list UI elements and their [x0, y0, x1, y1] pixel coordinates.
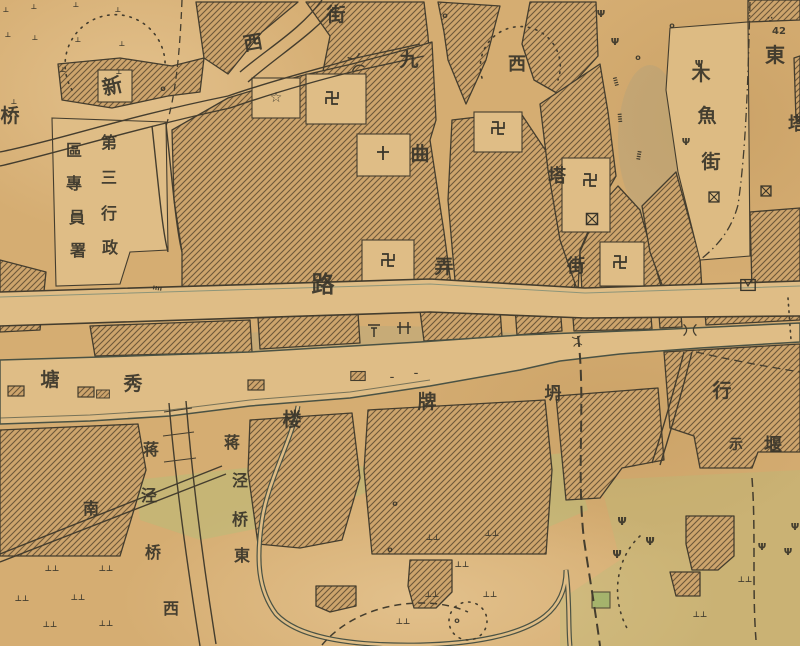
dock-rect-5: [351, 372, 365, 381]
grass-pair-3: ⊥⊥: [15, 594, 30, 603]
grass-one-10: ⊥: [116, 68, 122, 76]
grass-one-5: ⊥: [5, 31, 11, 39]
well-mark-6: o: [392, 499, 398, 508]
city-block: [364, 400, 552, 554]
dock-rect-3: [97, 390, 110, 398]
label-xi-top: 西: [242, 31, 265, 56]
well-mark-7: o: [454, 616, 460, 625]
label-pai: 牌: [417, 390, 436, 413]
dock-rect-2: [78, 387, 94, 397]
road-side-block: [258, 313, 360, 349]
steps-mark-3: ıııı: [634, 150, 644, 161]
tree-8: Ψ: [758, 542, 767, 553]
label-office-7: 員: [68, 208, 85, 227]
label-elevation: 42: [772, 26, 786, 37]
label-jiuqu-1: 九: [398, 49, 418, 71]
label-office-1: 第: [101, 133, 117, 152]
label-tang: 塘: [40, 368, 59, 391]
label-ta-right: 塔: [788, 113, 800, 135]
well-mark-5: o: [387, 545, 393, 554]
grass-one-8: ⊥: [119, 40, 125, 48]
label-tan: 坍: [545, 384, 562, 404]
well-mark-2: o: [669, 21, 675, 30]
grass-pair-5: ⊥⊥: [43, 620, 58, 629]
grass-one-11: ⊥: [11, 98, 17, 106]
label-office-3: 行: [100, 204, 117, 223]
label-xita-1: 西: [508, 54, 526, 75]
grass-pair-13: ⊥⊥: [738, 575, 753, 584]
label-jjqw-2: 泾: [141, 486, 157, 505]
tree-4: Ψ: [682, 137, 691, 148]
label-hang: 行: [711, 379, 731, 402]
label-jjqw-1: 蒋: [143, 440, 159, 459]
label-jjqw-4: 西: [163, 599, 179, 618]
label-jiuqu-3: 弄: [433, 256, 453, 278]
grass-pair-4: ⊥⊥: [71, 593, 86, 602]
grass-pair-6: ⊥⊥: [99, 619, 114, 628]
tree-5: Ψ: [617, 515, 626, 528]
steps-mark-2: ıııı: [616, 113, 625, 123]
label-jjqd-1: 蒋: [224, 433, 240, 452]
label-lu: 路: [312, 271, 336, 298]
well-mark-4: o: [160, 84, 166, 93]
label-jiuqu-2: 曲: [410, 143, 429, 165]
grass-pair-8: ⊥⊥: [455, 560, 470, 569]
grass-pair-14: ⊥⊥: [693, 610, 708, 619]
label-office-6: 專: [66, 174, 82, 193]
label-xita-3: 街: [566, 255, 585, 277]
grass-pair-7: ⊥⊥: [426, 533, 441, 542]
grass-pair-10: ⊥⊥: [483, 590, 498, 599]
label-office-8: 署: [69, 241, 86, 260]
canal-dash-1: –: [390, 373, 395, 383]
well-mark-1: o: [635, 53, 641, 62]
grass-pair-12: ⊥⊥: [485, 529, 500, 538]
dock-rect-4: [248, 380, 264, 390]
grass-pair-1: ⊥⊥: [45, 564, 60, 573]
grass-one-2: ⊥: [31, 3, 37, 11]
tree-2: Ψ: [611, 37, 620, 48]
label-qiao-left: 桥: [0, 104, 20, 127]
temple-courtyard: [600, 242, 644, 286]
grass-pair-9: ⊥⊥: [425, 590, 440, 599]
city-block: [248, 413, 360, 548]
label-xiu: 秀: [122, 373, 143, 395]
grass-pair-11: ⊥⊥: [396, 617, 411, 626]
grass-one-7: ⊥: [75, 36, 81, 44]
label-jjqd-3: 桥: [232, 510, 249, 529]
label-muyu-3: 街: [700, 150, 720, 173]
tree-1: Ψ: [597, 9, 606, 20]
grass-pair-2: ⊥⊥: [99, 564, 114, 573]
label-jjqd-2: 泾: [232, 471, 248, 490]
star-landmark: ☆: [270, 90, 283, 106]
grass-one-9: ⊥: [60, 66, 66, 74]
grass-one-1: ⊥: [3, 6, 9, 14]
steps-mark-4: ıııı: [152, 283, 163, 293]
city-block: [750, 208, 800, 290]
well-mark-3: o: [442, 11, 448, 20]
tree-9: Ψ: [784, 547, 793, 558]
grass-one-3: ⊥: [73, 1, 79, 9]
detached-building: [670, 572, 700, 596]
tree-6: Ψ: [645, 535, 654, 548]
label-lou: 楼: [282, 408, 301, 431]
label-yan: 堰: [764, 435, 782, 456]
label-shi: 示: [729, 437, 743, 453]
grass-one-4: ⊥: [115, 6, 121, 14]
map-svg: 桥新西街第三行政區專員署九曲弄西塔街木魚街東塔42路塘秀楼牌坍行示堰蒋泾桥西蒋泾…: [0, 0, 800, 646]
city-block: [0, 424, 146, 556]
label-jjqw-3: 桥: [145, 543, 162, 562]
tree-10: Ψ: [791, 522, 800, 533]
green-plot-square: [592, 592, 610, 608]
label-jie-top: 街: [325, 3, 345, 26]
road-side-block: [90, 320, 252, 356]
city-block: [748, 0, 800, 22]
dock-rect-1: [8, 386, 24, 396]
grass-one-12: ∵: [767, 15, 773, 24]
label-muyu-2: 魚: [697, 104, 716, 127]
label-office-4: 政: [102, 238, 119, 257]
grass-one-6: ⊥: [32, 34, 38, 42]
label-office-2: 三: [101, 168, 117, 187]
canal-dash-2: –: [414, 369, 419, 379]
label-dong-top: 東: [765, 43, 785, 67]
label-office-5: 區: [66, 141, 82, 160]
detached-building: [686, 516, 734, 570]
label-nan: 南: [83, 499, 99, 518]
label-jjqd-4: 東: [234, 546, 250, 565]
tree-3: Ψ: [695, 59, 704, 70]
historical-map-canvas: 桥新西街第三行政區專員署九曲弄西塔街木魚街東塔42路塘秀楼牌坍行示堰蒋泾桥西蒋泾…: [0, 0, 800, 646]
tree-7: Ψ: [612, 548, 621, 561]
label-xita-2: 塔: [548, 165, 567, 187]
